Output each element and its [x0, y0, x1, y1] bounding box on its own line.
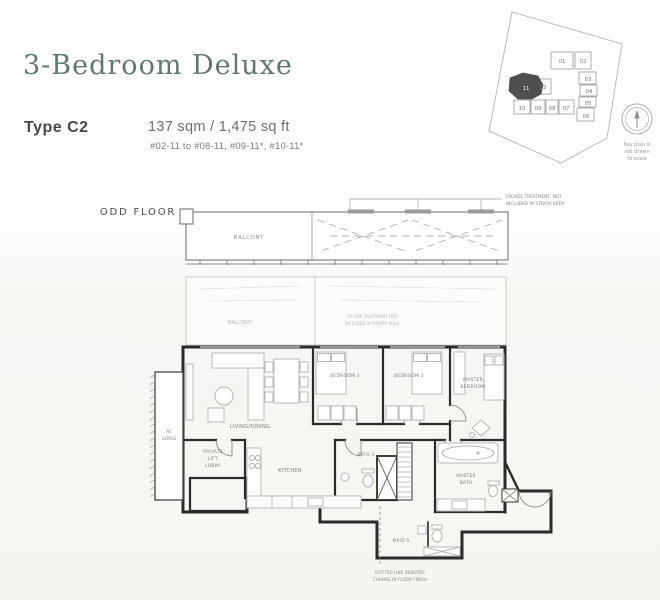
master-bedroom-label-2: BEDROOM [460, 384, 485, 390]
unit-area-text: 137 sqm / 1,475 sq ft [148, 119, 290, 135]
bath2-label: BATH 2 [357, 452, 374, 458]
key-plan-unit-07: 07 [563, 106, 570, 112]
ac-ledge-label-1: AC [166, 429, 172, 435]
master-bedroom-furniture [454, 352, 504, 438]
key-plan-unit-11: 11 [523, 86, 530, 92]
key-plan-unit-12: 12 [540, 85, 547, 91]
entrance-riser-box [502, 489, 518, 502]
brochure-page: 3-Bedroom Deluxe Type C2 137 sqm / 1,475… [0, 0, 660, 600]
key-plan-unit-08: 08 [549, 106, 556, 112]
floor-finish-note: DOTTED LINE DENOTES CHANGE IN FLOOR FINI… [373, 506, 427, 582]
key-plan-unit-10: 10 [519, 106, 526, 112]
bath2-fixtures [341, 469, 374, 487]
unit-range-text: #02-11 to #08-11, #09-11*, #10-11* [150, 141, 303, 152]
bottom-note-line1: DOTTED LINE DENOTES [375, 570, 425, 575]
ac-ledge-label-2: LEDGE [162, 436, 177, 442]
north-compass-icon: N [622, 104, 652, 134]
key-plan-unit-03: 03 [585, 77, 592, 83]
key-plan: 01 02 03 04 05 06 07 08 09 10 11 12 N Ke… [468, 0, 660, 178]
master-bedroom-label-1: MASTER [463, 377, 483, 383]
bedroom2-furniture [386, 352, 442, 420]
inner-facade-line2: INCLUDED IN STRATA AREA [345, 321, 400, 326]
entrance-door-leaf-right [535, 491, 551, 507]
svg-text:Key plan is: Key plan is [623, 142, 650, 148]
inner-balcony: BALCONY FACADE TREATMENT NOT INCLUDED IN… [186, 277, 506, 345]
bedroom3-label: BEDROOM 3 [330, 373, 360, 379]
master-bath-label-2: BATH [460, 480, 473, 486]
balcony-label: BALCONY [234, 235, 264, 241]
riser-shaft [397, 443, 412, 500]
floor-label: ODD FLOOR [100, 207, 176, 218]
key-plan-note: Key plan is not drawn to scale [623, 142, 650, 162]
inner-facade-line1: FACADE TREATMENT NOT [347, 314, 398, 319]
entrance-door-leaf-left [519, 491, 535, 507]
private-lift [190, 478, 247, 511]
master-bath-label-1: MASTER [456, 473, 476, 479]
bedroom3-furniture [316, 352, 356, 420]
lift-lobby-label-2: LIFT [208, 456, 218, 462]
kitchen-label: KITCHEN [278, 468, 302, 474]
svg-text:to scale: to scale [627, 156, 647, 162]
facade-callout: FACADE TREATMENT, NOT INCLUDED IN STRATA… [350, 194, 564, 210]
floor-plan: ODD FLOOR FACADE TREATMENT, NOT INCLUDED… [0, 170, 660, 600]
bedroom2-label: BEDROOM 2 [394, 373, 424, 379]
living-dining-furniture [186, 353, 308, 422]
unit-type-label: Type C2 [24, 119, 89, 137]
maids-fixtures [418, 525, 460, 556]
inner-balcony-label: BALCONY [228, 320, 253, 326]
svg-text:not drawn: not drawn [624, 149, 649, 155]
living-dining-label: LIVING/DINING [230, 424, 271, 430]
key-plan-unit-06: 06 [583, 114, 590, 120]
facade-note-line1: FACADE TREATMENT, NOT [506, 194, 562, 200]
facade-note-line2: INCLUDED IN STRATA AREA [506, 201, 564, 207]
key-plan-unit-02: 02 [580, 59, 587, 65]
household-shelter [377, 456, 397, 500]
lift-lobby-label-3: LOBBY [205, 463, 220, 469]
ac-ledge: AC LEDGE [150, 372, 183, 500]
maids-room-label: MAID'S [393, 538, 410, 544]
key-plan-unit-09: 09 [535, 106, 542, 112]
lift-lobby-label-1: PRIVATE [203, 449, 223, 455]
balcony: BALCONY [180, 209, 508, 265]
page-title: 3-Bedroom Deluxe [23, 50, 293, 81]
key-plan-unit-04: 04 [586, 89, 593, 95]
key-plan-units: 01 02 03 04 05 06 07 08 09 10 11 12 [509, 52, 597, 121]
key-plan-unit-05: 05 [585, 101, 592, 107]
bottom-note-line2: CHANGE IN FLOOR FINISH [373, 577, 427, 582]
key-plan-unit-01: 01 [559, 59, 566, 65]
